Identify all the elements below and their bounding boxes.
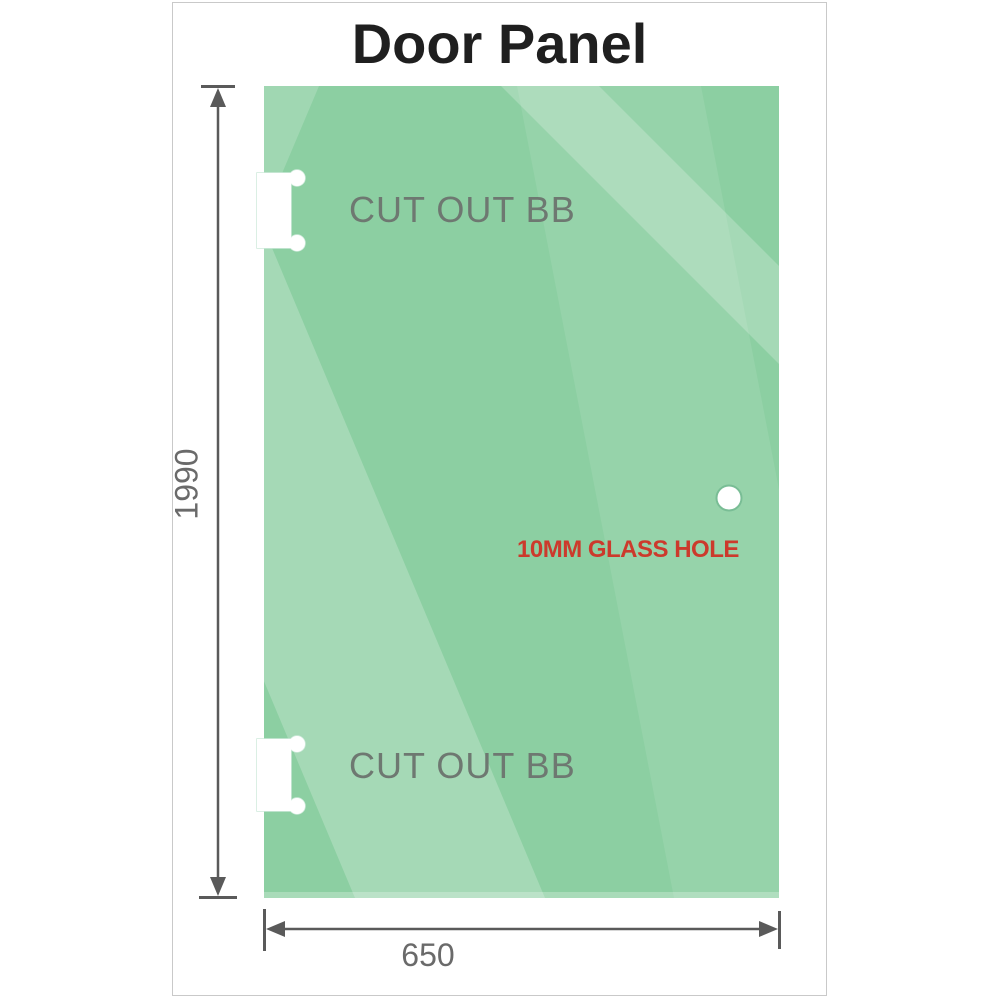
arrow-left-icon: [266, 921, 285, 937]
door-panel-drawing: [173, 3, 828, 997]
width-dimension-label: 650: [401, 937, 454, 974]
arrow-down-icon: [210, 877, 226, 896]
glass-hole: [717, 486, 742, 511]
diagram-card: Door Panel CUT OUT BB CUT OUT BB 10MM GL…: [172, 2, 827, 996]
cutout-bottom-label: CUT OUT BB: [349, 745, 576, 787]
page-title: Door Panel: [173, 11, 826, 76]
arrow-right-icon: [759, 921, 778, 937]
arrow-up-icon: [210, 88, 226, 107]
width-dimension: [265, 909, 780, 951]
panel-bottom-highlight: [264, 892, 779, 898]
height-dimension-label: 1990: [169, 448, 206, 519]
cutout-top-label: CUT OUT BB: [349, 189, 576, 231]
glass-hole-label: 10MM GLASS HOLE: [517, 536, 739, 564]
